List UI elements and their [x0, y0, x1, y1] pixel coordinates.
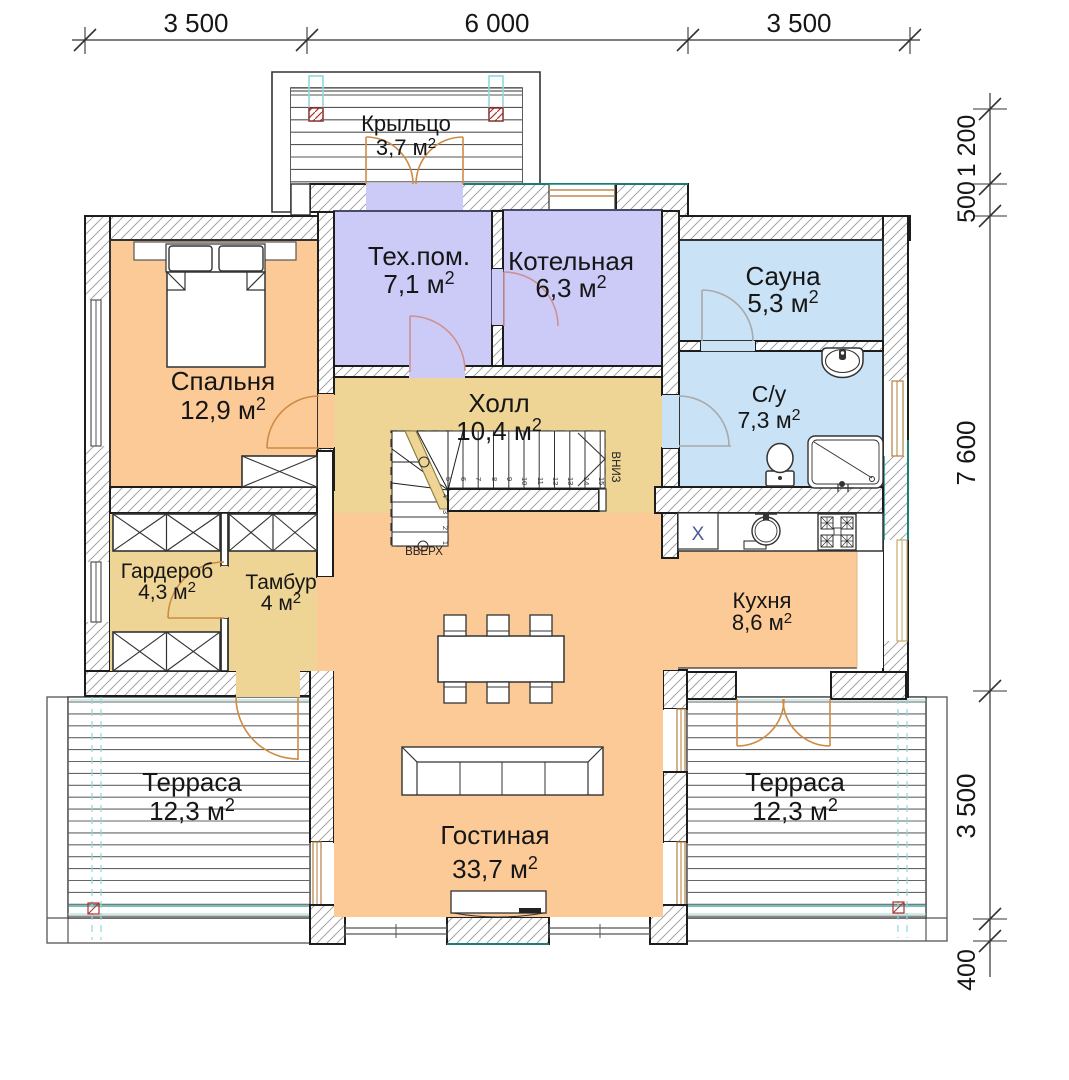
- svg-text:1 200: 1 200: [953, 115, 981, 178]
- svg-text:12,3 м2: 12,3 м2: [752, 795, 838, 826]
- svg-text:5,3 м2: 5,3 м2: [747, 287, 818, 318]
- svg-text:15: 15: [597, 477, 606, 485]
- svg-text:Терраса: Терраса: [142, 767, 242, 797]
- svg-text:С/у: С/у: [752, 381, 787, 407]
- svg-text:Холл: Холл: [468, 388, 529, 418]
- svg-text:500: 500: [953, 181, 981, 223]
- svg-text:Спальня: Спальня: [171, 366, 275, 396]
- svg-text:3 500: 3 500: [951, 773, 981, 838]
- svg-text:4,3 м2: 4,3 м2: [138, 579, 196, 604]
- svg-text:4: 4: [441, 494, 450, 498]
- svg-text:X: X: [692, 524, 705, 545]
- svg-text:2: 2: [441, 526, 450, 530]
- svg-text:9: 9: [505, 477, 514, 481]
- svg-text:12,9 м2: 12,9 м2: [180, 394, 266, 425]
- svg-text:3,7 м2: 3,7 м2: [376, 135, 436, 160]
- svg-text:8,6 м2: 8,6 м2: [732, 610, 792, 635]
- svg-text:400: 400: [953, 949, 981, 991]
- svg-text:3: 3: [441, 510, 450, 514]
- svg-text:12,3 м2: 12,3 м2: [149, 795, 235, 826]
- svg-text:5: 5: [444, 477, 453, 481]
- svg-text:Гостиная: Гостиная: [440, 820, 549, 850]
- svg-text:Терраса: Терраса: [745, 767, 845, 797]
- svg-text:7,3 м2: 7,3 м2: [737, 407, 800, 433]
- svg-text:11: 11: [536, 477, 545, 485]
- svg-text:1: 1: [441, 541, 450, 545]
- svg-text:6: 6: [459, 477, 468, 481]
- svg-text:14: 14: [582, 477, 591, 485]
- svg-text:ВВЕРХ: ВВЕРХ: [405, 546, 443, 558]
- svg-text:Тамбур: Тамбур: [245, 571, 316, 594]
- svg-text:7,1 м2: 7,1 м2: [383, 268, 454, 299]
- svg-text:7 600: 7 600: [951, 420, 981, 485]
- svg-text:ВНИЗ: ВНИЗ: [609, 451, 621, 482]
- svg-text:7: 7: [474, 477, 483, 481]
- svg-text:Котельная: Котельная: [508, 246, 634, 276]
- svg-text:8: 8: [490, 477, 499, 481]
- svg-text:10,4 м2: 10,4 м2: [456, 415, 542, 446]
- svg-text:33,7 м2: 33,7 м2: [452, 853, 538, 884]
- svg-text:6 000: 6 000: [464, 8, 529, 38]
- svg-text:3 500: 3 500: [766, 8, 831, 38]
- svg-text:Тех.пом.: Тех.пом.: [368, 241, 470, 271]
- svg-text:Крыльцо: Крыльцо: [361, 111, 451, 136]
- svg-text:6,3 м2: 6,3 м2: [535, 272, 606, 303]
- svg-text:13: 13: [566, 477, 575, 485]
- svg-text:Гардероб: Гардероб: [121, 560, 213, 583]
- svg-text:3 500: 3 500: [163, 8, 228, 38]
- svg-text:10: 10: [520, 477, 529, 485]
- svg-text:12: 12: [551, 477, 560, 485]
